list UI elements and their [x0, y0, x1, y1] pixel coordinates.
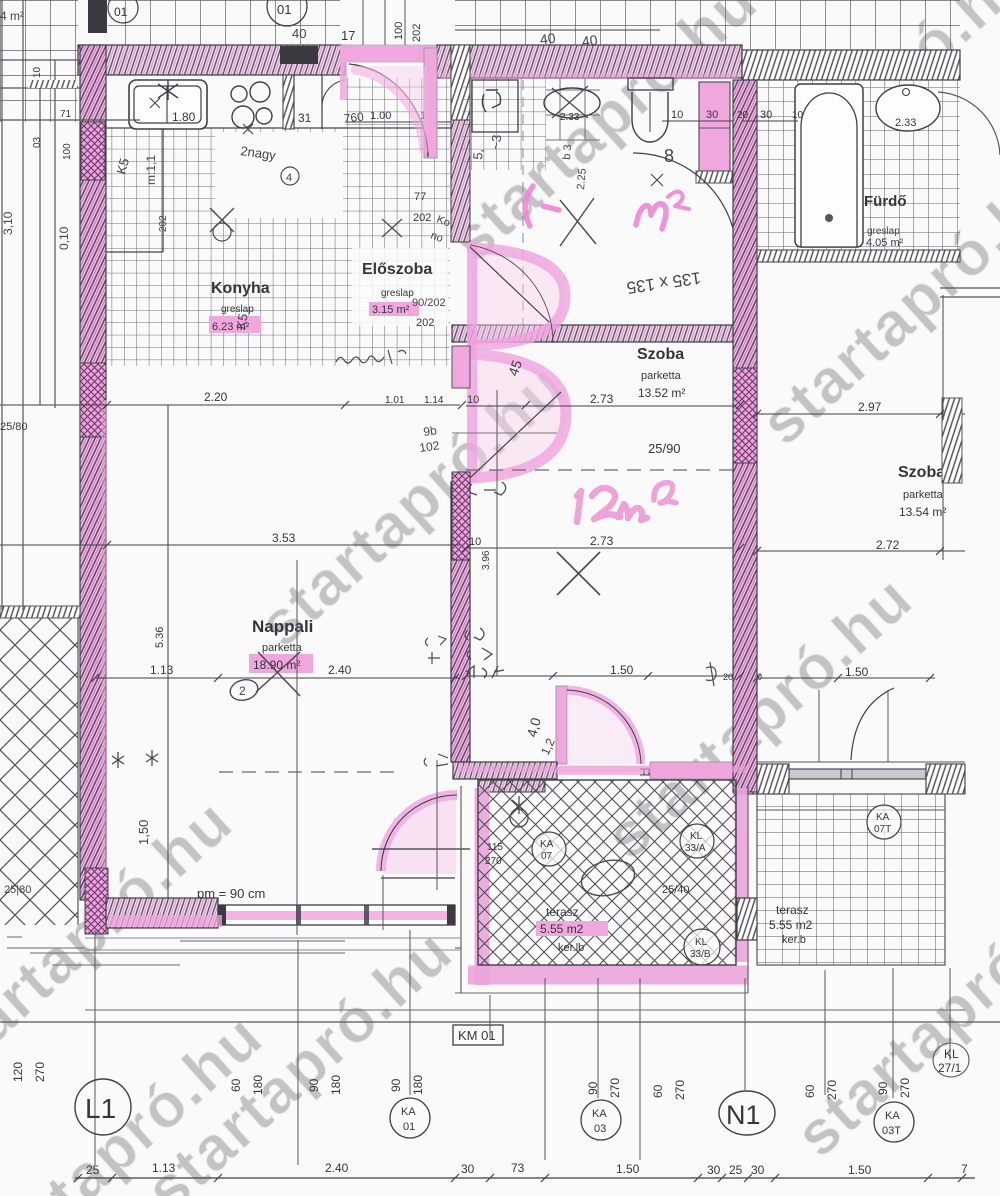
svg-text:25|80: 25|80 [4, 884, 31, 896]
svg-text:31: 31 [298, 111, 312, 125]
svg-text:1.50: 1.50 [610, 663, 634, 677]
svg-text:Konyha: Konyha [211, 280, 270, 297]
svg-text:3.53: 3.53 [272, 531, 296, 545]
svg-text:10: 10 [469, 536, 481, 548]
svg-text:25: 25 [86, 1163, 100, 1177]
svg-text:13.52 m²: 13.52 m² [638, 386, 685, 400]
svg-text:60: 60 [229, 1078, 243, 1092]
svg-text:90: 90 [307, 1078, 321, 1092]
svg-text:03: 03 [594, 1123, 606, 1135]
svg-text:4: 4 [286, 172, 292, 184]
svg-text:m:1,1: m:1,1 [144, 155, 158, 185]
svg-text:ker.b: ker.b [782, 934, 806, 946]
svg-text:07T: 07T [874, 824, 891, 835]
svg-text:5.55 m2: 5.55 m2 [540, 922, 584, 936]
svg-text:KA: KA [876, 812, 890, 823]
svg-text:~3: ~3 [488, 134, 504, 150]
svg-text:270: 270 [33, 1062, 47, 1082]
svg-text:20: 20 [723, 672, 733, 682]
svg-text:10: 10 [467, 394, 479, 406]
svg-text:202: 202 [411, 24, 423, 42]
svg-text:2.20: 2.20 [204, 390, 228, 404]
svg-text:40: 40 [581, 32, 599, 50]
svg-text:9b: 9b [422, 423, 437, 439]
svg-text:270: 270 [485, 856, 502, 867]
svg-text:3.15 m²: 3.15 m² [372, 304, 410, 316]
svg-text:Fürdő: Fürdő [864, 193, 907, 210]
svg-text:2.72: 2.72 [876, 538, 900, 552]
svg-text:25/90: 25/90 [648, 441, 681, 456]
svg-text:K5: K5 [233, 312, 251, 330]
svg-text:03: 03 [32, 136, 43, 148]
svg-text:10: 10 [671, 109, 683, 121]
svg-text:18.90 m²: 18.90 m² [253, 658, 300, 672]
svg-text:parketta: parketta [903, 489, 944, 501]
svg-text:Előszoba: Előszoba [362, 261, 432, 278]
svg-text:1.14: 1.14 [424, 395, 444, 406]
svg-text:2.25: 2.25 [575, 168, 589, 190]
svg-text:25/80: 25/80 [0, 421, 28, 433]
svg-text:60: 60 [803, 1084, 817, 1098]
svg-text:KA: KA [885, 1110, 900, 1122]
svg-text:10: 10 [32, 66, 43, 78]
svg-text:33/A: 33/A [685, 843, 706, 854]
svg-text:25: 25 [729, 1163, 743, 1177]
svg-text:5.55 m2: 5.55 m2 [769, 918, 813, 932]
svg-text:Szoba: Szoba [637, 346, 684, 363]
svg-text:7: 7 [961, 1162, 968, 1176]
svg-text:40: 40 [292, 26, 306, 41]
svg-text:N1: N1 [726, 1100, 761, 1130]
svg-text:2.33: 2.33 [895, 117, 916, 129]
svg-text:1.50: 1.50 [845, 665, 869, 679]
svg-text:71: 71 [60, 109, 72, 120]
svg-text:30: 30 [751, 1163, 765, 1177]
svg-text:90/202: 90/202 [412, 297, 446, 309]
svg-text:KA: KA [540, 839, 554, 850]
svg-text:4.05 m²: 4.05 m² [866, 237, 904, 249]
svg-text:90: 90 [586, 1081, 600, 1095]
svg-text:greslap: greslap [381, 288, 414, 299]
svg-text:1.01: 1.01 [385, 395, 405, 406]
svg-text:parketta: parketta [641, 370, 682, 382]
svg-text:KA: KA [401, 1106, 416, 1118]
svg-text:2.97: 2.97 [858, 400, 882, 414]
svg-text:30: 30 [706, 109, 718, 121]
svg-text:1,50: 1,50 [136, 820, 151, 845]
svg-text:30: 30 [760, 109, 772, 121]
svg-text:5,: 5, [470, 148, 486, 160]
svg-text:270: 270 [898, 1078, 912, 1098]
svg-text:01: 01 [114, 5, 128, 19]
svg-text:1.13: 1.13 [152, 1161, 176, 1175]
svg-text:25/40: 25/40 [662, 884, 690, 896]
svg-text:30: 30 [707, 1163, 721, 1177]
svg-text:60: 60 [651, 1084, 665, 1098]
svg-text:Szoba: Szoba [898, 464, 945, 481]
svg-text:0,10: 0,10 [57, 226, 71, 250]
svg-text:100: 100 [393, 22, 405, 40]
svg-text:01: 01 [403, 1121, 415, 1133]
svg-text:1.50: 1.50 [616, 1162, 640, 1176]
svg-text:2: 2 [239, 684, 246, 698]
svg-text:90: 90 [876, 1081, 890, 1095]
svg-text:20: 20 [737, 110, 749, 121]
svg-text:270: 270 [673, 1080, 687, 1100]
svg-text:KL: KL [690, 831, 703, 842]
svg-text:3.96: 3.96 [481, 550, 492, 570]
svg-text:27/1: 27/1 [938, 1061, 962, 1075]
svg-text:102: 102 [418, 438, 440, 455]
svg-text:KL: KL [944, 1047, 959, 1061]
svg-text:2.73: 2.73 [590, 534, 614, 548]
svg-text:2.40: 2.40 [328, 663, 352, 677]
svg-text:77: 77 [414, 191, 426, 203]
svg-text:30: 30 [461, 1162, 475, 1176]
svg-text:3,10: 3,10 [1, 211, 15, 235]
svg-text:KL: KL [695, 937, 708, 948]
svg-text:terasz: terasz [776, 903, 809, 917]
svg-text:90: 90 [389, 1078, 403, 1092]
svg-text:100: 100 [62, 143, 73, 160]
svg-text:10: 10 [792, 110, 804, 121]
svg-text:180: 180 [251, 1075, 265, 1095]
svg-text:b 3: b 3 [561, 144, 574, 160]
svg-text:180: 180 [329, 1075, 343, 1095]
svg-text:03T: 03T [882, 1125, 901, 1137]
svg-text:2.40: 2.40 [325, 1161, 349, 1175]
svg-text:KA: KA [592, 1108, 607, 1120]
svg-text:13.54 m²: 13.54 m² [899, 505, 946, 519]
svg-text:07: 07 [541, 851, 553, 862]
svg-text:01: 01 [277, 2, 291, 17]
svg-text:1.80: 1.80 [172, 110, 196, 124]
svg-text:40: 40 [539, 30, 557, 48]
svg-text:Nappali: Nappali [252, 617, 313, 636]
svg-text:73: 73 [511, 1161, 525, 1175]
svg-text:ker.lb: ker.lb [558, 942, 584, 954]
svg-text:270: 270 [825, 1080, 839, 1100]
svg-text:115: 115 [487, 842, 503, 853]
svg-text:1.50: 1.50 [848, 1163, 872, 1177]
svg-text:1.13: 1.13 [150, 663, 174, 677]
svg-text:terasz: terasz [546, 905, 579, 919]
svg-text:17: 17 [341, 28, 355, 43]
svg-text:202: 202 [158, 215, 169, 232]
svg-text:2.33: 2.33 [560, 112, 580, 123]
svg-text:2.73: 2.73 [590, 392, 614, 406]
svg-text:202: 202 [416, 317, 434, 329]
svg-text:1.00: 1.00 [370, 110, 391, 122]
svg-text:L1: L1 [85, 1093, 116, 1124]
svg-text:8: 8 [664, 146, 674, 166]
svg-text:180: 180 [411, 1075, 425, 1095]
svg-text:270: 270 [608, 1078, 622, 1098]
svg-text:202: 202 [413, 212, 431, 224]
svg-text:4 m²: 4 m² [0, 9, 24, 23]
svg-text:5.36: 5.36 [154, 627, 166, 648]
svg-text:120: 120 [11, 1062, 25, 1082]
svg-text:greslap: greslap [867, 226, 900, 237]
svg-text:33/B: 33/B [690, 949, 711, 960]
svg-text:760: 760 [343, 110, 365, 126]
